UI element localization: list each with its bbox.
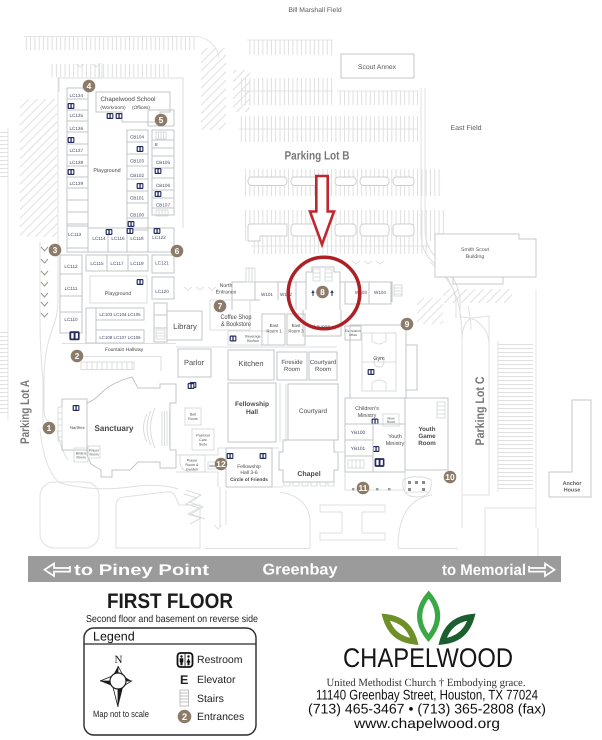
svg-text:Suite: Suite	[199, 443, 207, 447]
svg-text:LC103 LC104 LC105: LC103 LC104 LC105	[99, 312, 141, 317]
svg-text:3: 3	[53, 245, 58, 255]
svg-text:Chapel: Chapel	[297, 470, 320, 478]
svg-text:Room: Room	[418, 440, 436, 447]
svg-text:CB102: CB102	[130, 173, 144, 178]
svg-text:Greenbay: Greenbay	[263, 562, 338, 579]
svg-text:10: 10	[445, 472, 455, 482]
svg-text:Room: Room	[188, 417, 198, 421]
svg-text:Room &: Room &	[186, 463, 200, 467]
svg-text:LC118: LC118	[130, 236, 144, 241]
svg-text:Building: Building	[466, 254, 485, 260]
svg-text:LC121: LC121	[155, 261, 169, 266]
svg-text:Kitchen: Kitchen	[238, 359, 263, 368]
svg-text:Parking Lot A: Parking Lot A	[18, 380, 32, 444]
svg-text:CHAPELWOOD: CHAPELWOOD	[343, 643, 513, 673]
svg-text:Stairs: Stairs	[197, 693, 224, 705]
svg-text:4: 4	[87, 81, 92, 91]
svg-text:Courtyard: Courtyard	[299, 408, 328, 415]
svg-text:LC115: LC115	[90, 261, 104, 266]
svg-text:Bill Marshall Field: Bill Marshall Field	[288, 7, 341, 14]
svg-text:Room 1: Room 1	[266, 329, 282, 334]
svg-text:to Piney Point: to Piney Point	[74, 562, 209, 579]
svg-text:Parking Lot B: Parking Lot B	[285, 149, 350, 163]
svg-text:W102: W102	[280, 292, 292, 297]
svg-text:CB106: CB106	[156, 183, 170, 188]
svg-text:Coffee Shop: Coffee Shop	[221, 314, 252, 321]
svg-text:Room: Room	[387, 420, 396, 424]
svg-text:Room: Room	[76, 456, 85, 460]
svg-text:Playground: Playground	[105, 291, 131, 297]
svg-text:Care: Care	[199, 438, 207, 442]
svg-text:Ministry: Ministry	[358, 413, 377, 419]
svg-text:LC136: LC136	[70, 126, 84, 131]
svg-text:Smith Scout: Smith Scout	[461, 247, 490, 253]
svg-text:LC110: LC110	[64, 317, 78, 322]
svg-text:Fountain Hallway: Fountain Hallway	[105, 347, 144, 353]
svg-text:East Field: East Field	[450, 124, 481, 132]
svg-text:www.chapelwood.org: www.chapelwood.org	[353, 715, 500, 731]
svg-text:2: 2	[182, 712, 187, 723]
svg-text:Entrances: Entrances	[197, 711, 244, 723]
svg-text:Courtyard: Courtyard	[310, 359, 336, 366]
svg-text:Prayer: Prayer	[187, 459, 198, 463]
svg-text:Sanctuary: Sanctuary	[95, 423, 134, 433]
svg-text:5: 5	[159, 115, 164, 125]
svg-text:Restroom: Restroom	[197, 654, 243, 666]
svg-text:LC122: LC122	[152, 235, 166, 240]
svg-text:LC114: LC114	[92, 236, 106, 241]
svg-text:Bell: Bell	[190, 413, 196, 417]
svg-text:1: 1	[47, 423, 52, 433]
svg-text:YB100: YB100	[351, 430, 366, 436]
svg-text:Circle of Friends: Circle of Friends	[230, 477, 268, 483]
svg-text:Room: Room	[315, 366, 331, 373]
svg-text:Garden: Garden	[186, 468, 198, 472]
svg-text:Room: Room	[284, 366, 300, 373]
svg-text:Entrance: Entrance	[216, 290, 237, 296]
svg-text:Anchor: Anchor	[563, 481, 583, 487]
svg-text:Library: Library	[173, 322, 197, 331]
svg-text:Pastoral: Pastoral	[196, 434, 209, 438]
svg-text:9: 9	[405, 319, 410, 329]
svg-text:LC119: LC119	[130, 261, 144, 266]
svg-text:CB100: CB100	[130, 213, 144, 218]
svg-text:LC112: LC112	[64, 264, 78, 269]
svg-text:Parking Lot C: Parking Lot C	[473, 377, 487, 446]
svg-text:12: 12	[216, 459, 226, 469]
svg-text:E: E	[155, 142, 158, 147]
svg-text:LC137: LC137	[70, 148, 84, 153]
svg-text:North: North	[220, 283, 233, 289]
svg-text:8: 8	[320, 287, 325, 297]
svg-text:Narthex: Narthex	[70, 425, 86, 430]
svg-text:Parlor: Parlor	[184, 358, 205, 367]
svg-text:CB103: CB103	[130, 159, 144, 164]
svg-text:CB101: CB101	[130, 196, 144, 201]
svg-text:LC117: LC117	[110, 261, 124, 266]
svg-text:to Memorial: to Memorial	[442, 562, 526, 579]
svg-text:House: House	[564, 488, 580, 494]
svg-text:Legend: Legend	[93, 630, 135, 644]
svg-text:& Bookstore: & Bookstore	[221, 321, 251, 328]
svg-text:(Workroom): (Workroom)	[100, 105, 126, 111]
svg-text:6: 6	[175, 246, 180, 256]
svg-text:LC113: LC113	[68, 232, 82, 237]
svg-text:FIRST FLOOR: FIRST FLOOR	[107, 590, 233, 613]
svg-text:East: East	[270, 323, 280, 328]
svg-text:CB107: CB107	[156, 203, 170, 208]
svg-text:Chapelwood School: Chapelwood School	[100, 96, 155, 103]
svg-text:Hall 3-6: Hall 3-6	[240, 470, 257, 476]
svg-text:LC138: LC138	[70, 160, 84, 165]
svg-text:LC108 LC107 LC106: LC108 LC107 LC106	[99, 335, 141, 340]
svg-text:Children's: Children's	[355, 406, 379, 412]
svg-text:Beverage: Beverage	[245, 335, 260, 339]
svg-text:Youth: Youth	[418, 426, 435, 433]
svg-text:Fellowship: Fellowship	[235, 401, 269, 408]
svg-text:Gym: Gym	[373, 356, 385, 362]
svg-text:YB101: YB101	[351, 446, 366, 452]
svg-text:LC111: LC111	[65, 286, 78, 291]
svg-text:CB104: CB104	[130, 135, 144, 140]
svg-text:7: 7	[218, 301, 223, 311]
svg-text:E: E	[180, 673, 188, 687]
svg-text:Scout Annex: Scout Annex	[358, 64, 397, 71]
svg-text:LC116: LC116	[111, 236, 125, 241]
svg-text:Room 3: Room 3	[288, 329, 304, 334]
svg-text:Map not to scale: Map not to scale	[93, 709, 149, 719]
svg-text:LC120: LC120	[155, 289, 169, 294]
svg-text:Fireside: Fireside	[281, 359, 303, 366]
svg-text:Room: Room	[89, 453, 98, 457]
svg-text:Kitchen: Kitchen	[247, 339, 259, 343]
svg-text:Ministry: Ministry	[386, 441, 405, 447]
svg-text:N: N	[115, 654, 123, 666]
svg-text:LC139: LC139	[70, 181, 84, 186]
svg-text:W104: W104	[374, 290, 386, 295]
svg-text:Youth: Youth	[388, 434, 402, 440]
svg-text:LC135: LC135	[70, 113, 84, 118]
svg-text:Elevator: Elevator	[197, 674, 236, 686]
svg-text:Game: Game	[418, 433, 436, 440]
svg-text:East: East	[292, 323, 302, 328]
svg-text:Playground: Playground	[93, 168, 120, 174]
svg-text:CB105: CB105	[156, 160, 170, 165]
svg-text:11: 11	[359, 483, 368, 493]
svg-text:LC134: LC134	[70, 93, 84, 98]
svg-text:Second floor and basement on: Second floor and basement on reverse sid…	[86, 614, 258, 625]
svg-text:Hall: Hall	[246, 409, 258, 416]
svg-text:2: 2	[75, 351, 80, 361]
svg-text:W101: W101	[261, 292, 273, 297]
